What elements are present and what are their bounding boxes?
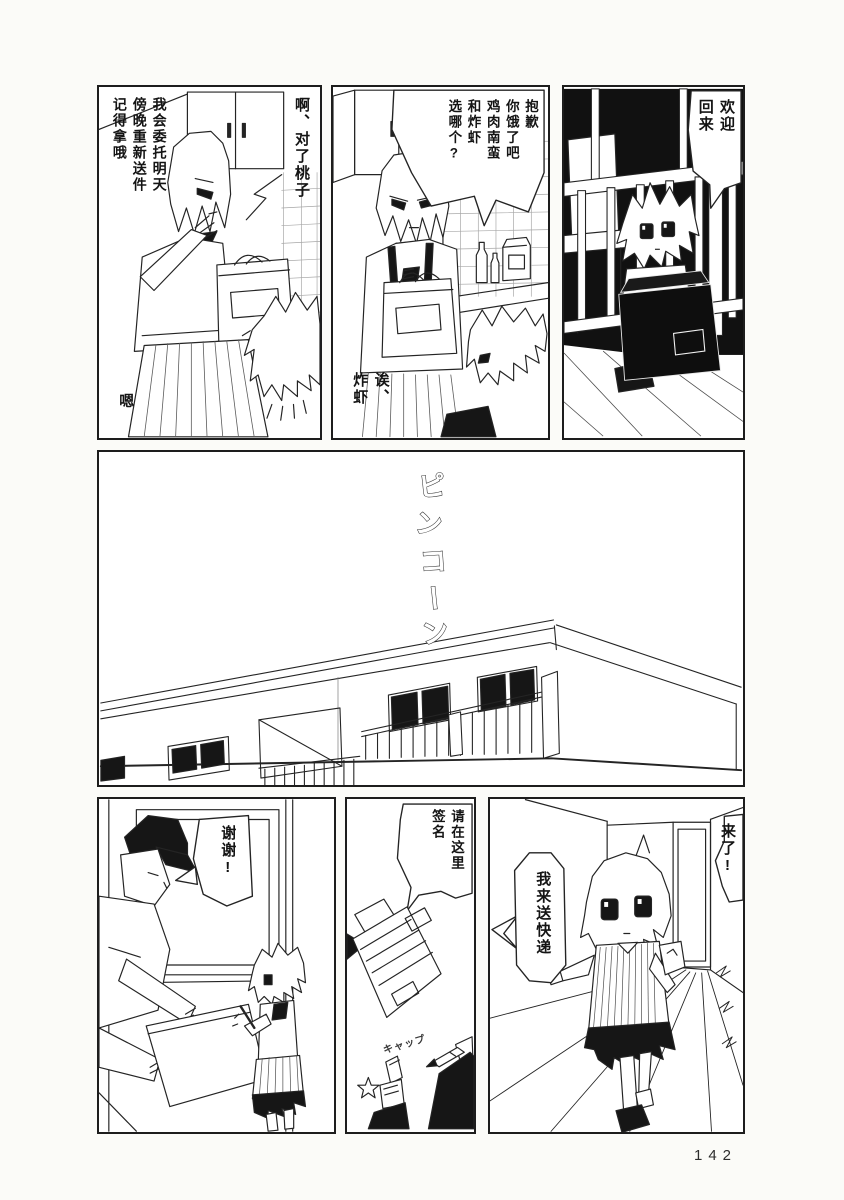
manga-page: 啊、对了桃子 我会委托明天 傍晚重新送件 记得拿哦 嗯 (0, 0, 844, 1200)
speech-reply-ebi: 诶、 炸虾 (349, 372, 392, 406)
apartment-building (101, 620, 741, 785)
hallway-art (490, 799, 743, 1132)
bottles (476, 237, 530, 282)
sfx-char: ピ (417, 470, 447, 503)
speech-coming: 来了! (717, 823, 738, 876)
panel-hallway-coming: 来了! 我来送快递 (488, 797, 745, 1134)
page-number: 142 (694, 1147, 737, 1164)
speech-sign-here: 请在这里 签名 (428, 809, 466, 871)
speech-reply-mm: 嗯 (115, 393, 136, 410)
hand-with-pen (426, 1037, 474, 1129)
sfx-char: ン (420, 616, 451, 650)
girl-figure (547, 835, 685, 1132)
speech-delivery: 我来送快递 (532, 871, 553, 956)
speech-thanks: 谢谢! (217, 825, 238, 878)
panel-apartment-exterior: ピ ン コ ー ン (97, 450, 745, 787)
dark-clothing (441, 406, 496, 436)
girl-head (467, 306, 548, 385)
panel-balcony-welcome: 欢迎 回来 (562, 85, 745, 440)
sfx-char: ン (414, 508, 444, 541)
speech-momoko: 啊、对了桃子 (291, 97, 312, 199)
black-delivery-box (619, 271, 721, 381)
sfx-char: コ (419, 546, 448, 578)
shopping-bag (382, 273, 457, 357)
sfx-char: ー (417, 583, 450, 613)
stair-opening (259, 708, 342, 778)
bubble-tail (492, 916, 518, 949)
apartment-building-art: ピ ン コ ー ン (99, 452, 743, 785)
lower-windows (101, 737, 229, 781)
panel-kitchen-reminder: 啊、对了桃子 我会委托明天 傍晚重新送件 记得拿哦 嗯 (97, 85, 322, 440)
speech-redelivery: 我会委托明天 傍晚重新送件 记得拿哦 (109, 97, 169, 193)
speech-choice: 抱歉 你饿了吧 鸡肉南蛮 和炸虾 选哪个? (444, 99, 540, 163)
panel-kitchen-choice: 抱歉 你饿了吧 鸡肉南蛮 和炸虾 选哪个? 诶、 炸虾 (331, 85, 550, 440)
speech-tail (246, 175, 281, 220)
trembling-marks (716, 966, 736, 1048)
delivery-slip (347, 899, 441, 1017)
speech-welcome: 欢迎 回来 (694, 99, 737, 133)
balcony-night-art (564, 87, 743, 438)
doorbell-sfx: ピ ン コ ー ン (414, 470, 451, 650)
hand-with-cap (358, 1056, 409, 1129)
panel-door-thanks: 谢谢! (97, 797, 336, 1134)
panel-sign-here: 请在这里 签名 キャップ (345, 797, 476, 1134)
